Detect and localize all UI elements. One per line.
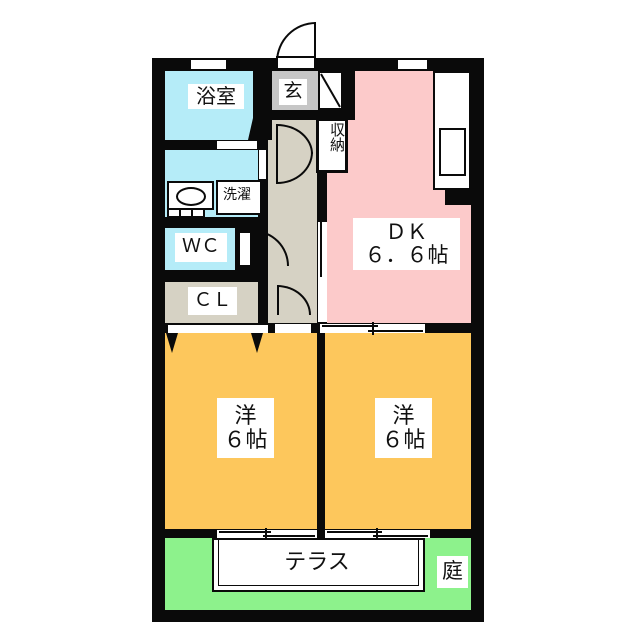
wc-label: ＷＣ — [175, 233, 227, 262]
wall-bedrooms-bottom — [152, 529, 484, 538]
wall-between-bedrooms — [317, 333, 325, 529]
dk-window — [397, 59, 428, 70]
bath-door-opening — [217, 141, 257, 149]
sink-drawer-band — [167, 208, 205, 218]
outer-wall-right — [471, 58, 484, 622]
bedroom-left-door-opening — [275, 324, 311, 333]
bedroom-left-label: 洋 ６帖 — [217, 398, 274, 458]
entrance-label: 玄 — [279, 79, 307, 105]
dk-label: ＤＫ ６．６帖 — [353, 218, 460, 270]
outer-wall-bottom — [152, 610, 484, 622]
closet-label: ＣＬ — [188, 287, 237, 315]
laundry-label: 洗濯 — [220, 185, 254, 205]
counter-wall-stub — [445, 190, 471, 205]
washroom-door-leaf — [258, 149, 267, 180]
closet-door-left-icon — [166, 333, 178, 353]
closet-opening — [168, 325, 268, 333]
bedroom-right-name: 洋 — [392, 404, 414, 428]
bedroom-right-area: ６帖 — [381, 428, 425, 452]
entrance-door-leaf2 — [276, 56, 316, 70]
hall-top-door-leaf — [276, 124, 278, 184]
storage-label: 収納 — [319, 122, 345, 168]
kitchen-sink — [439, 128, 466, 176]
dk-name: ＤＫ — [386, 221, 428, 244]
bedroom-right-label: 洋 ６帖 — [375, 398, 432, 458]
wall-washroom-wc — [165, 217, 268, 228]
wall-bath-entrance — [253, 71, 272, 140]
dk-sliding-panel — [320, 222, 322, 277]
wc-door-leaf — [239, 232, 251, 266]
bedroom-left-window — [217, 530, 317, 538]
bath-window — [190, 59, 227, 70]
floorplan-canvas: 収納 洗濯 テラス 庭 浴室 玄 ＷＣ ＣＬ ＤＫ ６．６帖 — [0, 0, 640, 640]
closet-door-right-icon — [251, 333, 263, 353]
sink-icon — [167, 181, 214, 210]
bedroom-left-area: ６帖 — [223, 428, 267, 452]
bedroom-left-name: 洋 — [234, 404, 256, 428]
dk-area: ６．６帖 — [365, 244, 449, 267]
shoe-cabinet — [318, 71, 343, 110]
outer-wall-left — [152, 58, 165, 622]
bedroom-right-window — [325, 530, 430, 538]
dk-bedroom-sliding-door — [320, 324, 425, 333]
bath-label: 浴室 — [188, 84, 244, 109]
terrace-label: テラス — [262, 548, 372, 576]
shoe-cabinet-diagonal — [320, 73, 341, 108]
garden-label: 庭 — [437, 556, 468, 588]
